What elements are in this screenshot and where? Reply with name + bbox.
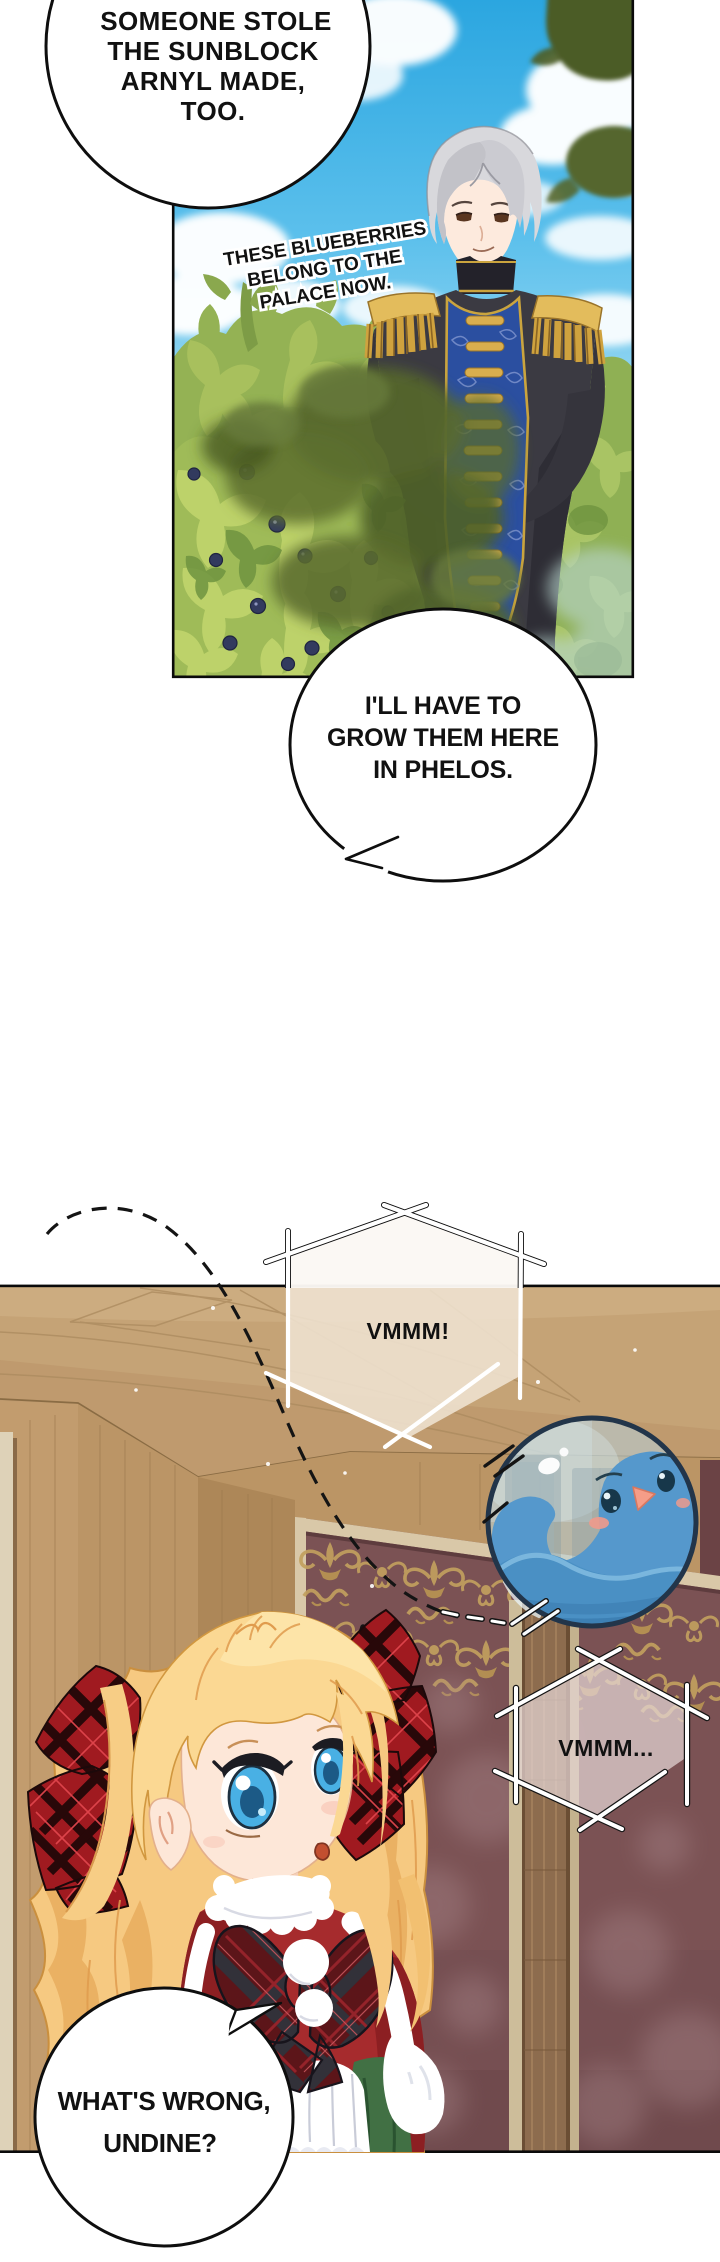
svg-text:I'LL HAVE TO: I'LL HAVE TO [365,692,521,720]
svg-text:VMMM...: VMMM... [558,1735,654,1761]
svg-text:ARNYL MADE,: ARNYL MADE, [121,66,305,96]
svg-text:WHAT'S WRONG,: WHAT'S WRONG, [58,2086,271,2116]
svg-text:IN PHELOS.: IN PHELOS. [373,756,513,784]
svg-text:VMMM!: VMMM! [367,1318,450,1344]
svg-text:SOMEONE STOLE: SOMEONE STOLE [100,6,332,36]
svg-text:THE SUNBLOCK: THE SUNBLOCK [107,36,318,66]
svg-text:GROW THEM HERE: GROW THEM HERE [327,724,559,752]
svg-text:UNDINE?: UNDINE? [103,2128,216,2158]
svg-text:TOO.: TOO. [181,96,246,126]
